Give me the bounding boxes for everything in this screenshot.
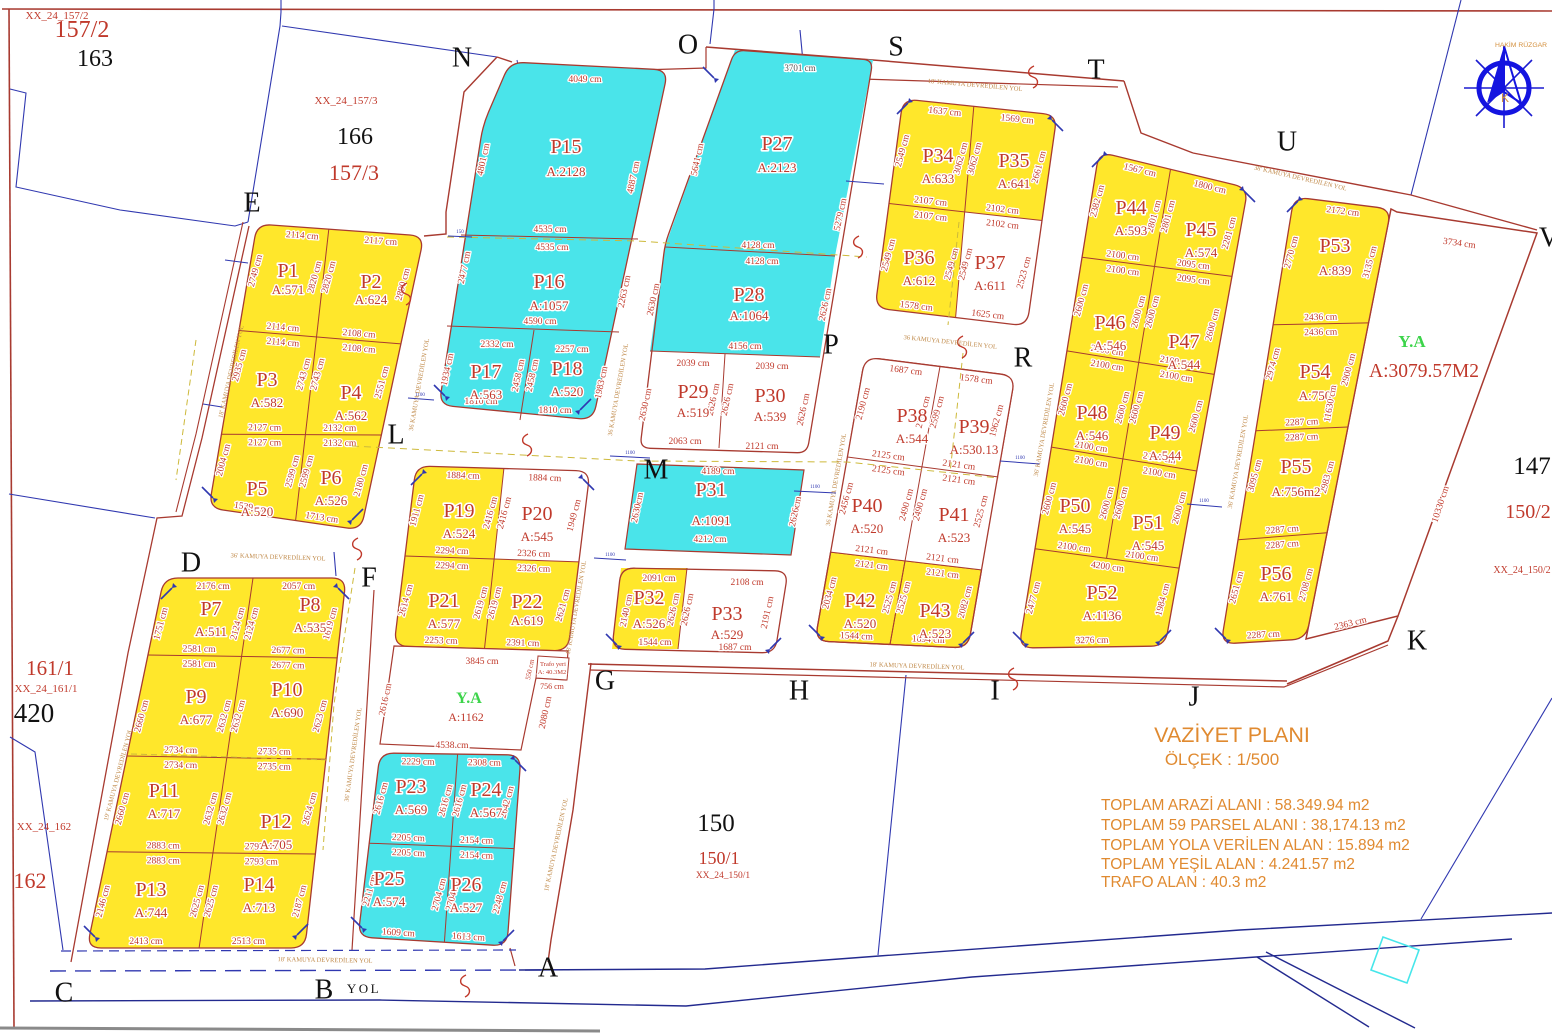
svg-text:161/1: 161/1 xyxy=(26,656,74,680)
svg-text:L: L xyxy=(387,420,404,451)
svg-text:2734 cm: 2734 cm xyxy=(164,761,198,772)
svg-text:P43: P43 xyxy=(919,600,950,622)
svg-text:A:563: A:563 xyxy=(470,387,503,402)
svg-text:P40: P40 xyxy=(851,495,882,517)
svg-text:2154 cm: 2154 cm xyxy=(460,851,494,862)
svg-text:A:571: A:571 xyxy=(272,282,305,297)
svg-text:P39: P39 xyxy=(958,416,989,438)
svg-text:V: V xyxy=(1539,223,1552,254)
svg-text:A:520: A:520 xyxy=(851,521,884,536)
svg-text:P37: P37 xyxy=(974,252,1005,274)
svg-text:P38: P38 xyxy=(896,405,927,427)
svg-text:P23: P23 xyxy=(395,776,426,798)
svg-text:2229 cm: 2229 cm xyxy=(402,757,436,767)
svg-text:A:519: A:519 xyxy=(677,405,710,420)
svg-text:P34: P34 xyxy=(922,145,953,167)
svg-text:I: I xyxy=(990,676,999,707)
svg-text:2253 cm: 2253 cm xyxy=(424,636,458,647)
svg-text:A:744: A:744 xyxy=(135,905,168,920)
svg-text:1100: 1100 xyxy=(605,553,615,558)
svg-text:4590 cm: 4590 cm xyxy=(524,317,558,327)
svg-text:4189 cm: 4189 cm xyxy=(702,467,736,477)
svg-text:1100: 1100 xyxy=(1015,456,1025,461)
svg-text:4535 cm: 4535 cm xyxy=(536,243,570,253)
svg-text:P6: P6 xyxy=(320,467,341,489)
svg-text:A:1064: A:1064 xyxy=(730,308,770,323)
svg-text:N: N xyxy=(452,43,472,74)
svg-text:ÖLÇEK : 1/500: ÖLÇEK : 1/500 xyxy=(1165,750,1279,769)
svg-text:A:527: A:527 xyxy=(450,900,483,915)
svg-text:P42: P42 xyxy=(844,590,875,612)
svg-text:A:619: A:619 xyxy=(511,613,544,628)
svg-text:P24: P24 xyxy=(470,779,501,801)
svg-text:A: A xyxy=(538,953,559,984)
svg-text:166: 166 xyxy=(337,124,373,150)
svg-text:TOPLAM YEŞİL ALAN : 4.241.57: TOPLAM YEŞİL ALAN : 4.241.57 m2 xyxy=(1101,855,1355,873)
svg-text:2287 cm: 2287 cm xyxy=(1285,417,1319,428)
svg-text:4128 cm: 4128 cm xyxy=(742,241,776,251)
svg-text:A:523: A:523 xyxy=(938,530,971,545)
svg-text:A:520: A:520 xyxy=(241,504,274,519)
svg-text:P45: P45 xyxy=(1185,219,1216,241)
svg-text:162: 162 xyxy=(14,868,47,893)
svg-text:150/2: 150/2 xyxy=(1505,501,1551,523)
svg-text:1100: 1100 xyxy=(810,485,820,490)
svg-text:P26: P26 xyxy=(450,874,481,896)
svg-text:1687 cm: 1687 cm xyxy=(719,643,753,653)
svg-text:A:530.13: A:530.13 xyxy=(950,442,999,457)
svg-text:E: E xyxy=(243,188,260,219)
svg-text:P33: P33 xyxy=(711,603,742,625)
svg-text:P31: P31 xyxy=(695,479,726,501)
svg-text:K: K xyxy=(1407,626,1427,657)
svg-text:P1: P1 xyxy=(277,260,298,282)
svg-text:P27: P27 xyxy=(761,133,792,155)
svg-text:3845 cm: 3845 cm xyxy=(466,657,500,667)
svg-text:2127 cm: 2127 cm xyxy=(248,423,282,433)
svg-text:XX_24_150/2: XX_24_150/2 xyxy=(1493,565,1550,576)
svg-text:A:2128: A:2128 xyxy=(547,164,586,179)
svg-text:A:839: A:839 xyxy=(1319,263,1352,278)
svg-text:A:641: A:641 xyxy=(998,176,1031,191)
svg-text:P: P xyxy=(823,330,839,361)
svg-text:2154 cm: 2154 cm xyxy=(460,836,494,847)
svg-text:2294 cm: 2294 cm xyxy=(435,546,469,557)
svg-text:A: 40.3M2: A: 40.3M2 xyxy=(538,669,567,676)
svg-text:150: 150 xyxy=(456,230,464,235)
svg-text:K: K xyxy=(1501,91,1509,105)
svg-text:P11: P11 xyxy=(149,780,179,802)
svg-text:2793 cm: 2793 cm xyxy=(245,857,279,867)
svg-text:A:511: A:511 xyxy=(195,624,227,639)
svg-text:P46: P46 xyxy=(1094,312,1125,334)
svg-text:XX_24_150/1: XX_24_150/1 xyxy=(696,871,751,881)
svg-text:A:524: A:524 xyxy=(443,526,476,541)
svg-text:2326 cm: 2326 cm xyxy=(517,564,551,575)
svg-text:A:1091: A:1091 xyxy=(692,513,731,528)
svg-text:2205 cm: 2205 cm xyxy=(392,848,426,859)
svg-text:2677 cm: 2677 cm xyxy=(271,646,305,657)
svg-text:2883 cm: 2883 cm xyxy=(147,841,181,851)
svg-text:2326 cm: 2326 cm xyxy=(517,549,551,560)
svg-text:2308 cm: 2308 cm xyxy=(468,758,502,768)
svg-text:1613 cm: 1613 cm xyxy=(452,932,486,944)
svg-text:P56: P56 xyxy=(1260,563,1291,585)
svg-text:D: D xyxy=(181,548,201,579)
svg-text:P13: P13 xyxy=(135,879,166,901)
svg-text:A:574: A:574 xyxy=(373,894,406,909)
svg-text:2287 cm: 2287 cm xyxy=(1285,432,1319,443)
svg-text:TOPLAM YOLA VERİLEN ALAN : 15.: TOPLAM YOLA VERİLEN ALAN : 15.894 m2 xyxy=(1101,836,1410,854)
svg-text:420: 420 xyxy=(14,698,55,728)
svg-text:P51: P51 xyxy=(1132,512,1163,534)
svg-text:150/1: 150/1 xyxy=(698,848,739,868)
svg-text:P21: P21 xyxy=(428,590,459,612)
svg-text:P36: P36 xyxy=(903,247,934,269)
svg-text:A:526: A:526 xyxy=(315,493,348,508)
svg-text:F: F xyxy=(361,563,377,594)
svg-text:A:582: A:582 xyxy=(251,395,284,410)
svg-text:2121 cm: 2121 cm xyxy=(746,442,780,452)
svg-text:A:3079.57M2: A:3079.57M2 xyxy=(1369,361,1479,382)
svg-text:3701 cm: 3701 cm xyxy=(784,63,815,73)
svg-text:P20: P20 xyxy=(521,503,552,525)
svg-text:P8: P8 xyxy=(299,594,320,616)
svg-text:A:523: A:523 xyxy=(919,626,952,641)
svg-text:P7: P7 xyxy=(200,598,221,620)
svg-text:P47: P47 xyxy=(1168,331,1199,353)
svg-text:2132 cm: 2132 cm xyxy=(323,424,357,434)
svg-text:A:611: A:611 xyxy=(974,278,1006,293)
svg-text:A:539: A:539 xyxy=(754,409,787,424)
svg-text:2436 cm: 2436 cm xyxy=(1304,313,1338,324)
svg-text:P48: P48 xyxy=(1076,402,1107,424)
svg-text:A:562: A:562 xyxy=(335,408,368,423)
svg-text:1884 cm: 1884 cm xyxy=(446,471,480,482)
svg-text:2391 cm: 2391 cm xyxy=(506,638,540,649)
svg-text:A:717: A:717 xyxy=(148,806,181,821)
svg-text:2057 cm: 2057 cm xyxy=(282,582,316,592)
svg-text:XX_24_157/3: XX_24_157/3 xyxy=(315,95,378,107)
svg-text:2039 cm: 2039 cm xyxy=(756,362,790,372)
svg-text:P29: P29 xyxy=(677,381,708,403)
svg-text:TOPLAM ARAZİ ALANI : 58.349.94: TOPLAM ARAZİ ALANI : 58.349.94 m2 xyxy=(1101,796,1370,814)
svg-text:4535 cm: 4535 cm xyxy=(534,225,568,235)
svg-text:150: 150 xyxy=(697,810,735,837)
svg-text:2735 cm: 2735 cm xyxy=(258,762,292,773)
svg-text:2436 cm: 2436 cm xyxy=(1304,328,1338,339)
svg-text:147: 147 xyxy=(1513,453,1551,480)
svg-text:A:545: A:545 xyxy=(1132,538,1165,553)
svg-text:A:546: A:546 xyxy=(1094,338,1127,353)
svg-text:1544 cm: 1544 cm xyxy=(639,638,673,648)
svg-text:A:545: A:545 xyxy=(521,529,554,544)
svg-text:A:690: A:690 xyxy=(271,705,304,720)
svg-text:M: M xyxy=(644,455,669,486)
svg-text:2581 cm: 2581 cm xyxy=(183,660,217,671)
svg-text:P30: P30 xyxy=(754,385,785,407)
svg-text:A:677: A:677 xyxy=(180,712,213,727)
svg-text:3276 cm: 3276 cm xyxy=(1075,636,1109,646)
svg-text:P35: P35 xyxy=(998,150,1029,172)
svg-text:A:713: A:713 xyxy=(243,900,276,915)
svg-text:TRAFO ALAN : 40.3 m2: TRAFO ALAN : 40.3 m2 xyxy=(1101,874,1266,891)
svg-text:2091 cm: 2091 cm xyxy=(643,574,677,584)
svg-text:A:544: A:544 xyxy=(1149,448,1182,463)
svg-text:2294 cm: 2294 cm xyxy=(435,561,469,572)
svg-text:2883 cm: 2883 cm xyxy=(147,856,181,866)
svg-text:A:761: A:761 xyxy=(1260,589,1293,604)
svg-text:2287 cm: 2287 cm xyxy=(1247,629,1281,641)
svg-text:XX_24_161/1: XX_24_161/1 xyxy=(15,683,78,695)
svg-text:A:535: A:535 xyxy=(294,620,327,635)
svg-text:R: R xyxy=(1014,343,1033,374)
svg-text:756 cm: 756 cm xyxy=(540,682,565,691)
svg-text:P4: P4 xyxy=(340,382,361,404)
svg-text:4538 cm: 4538 cm xyxy=(436,741,470,751)
svg-text:P16: P16 xyxy=(533,271,564,293)
svg-text:P28: P28 xyxy=(733,284,764,306)
svg-text:Y.A: Y.A xyxy=(456,690,482,707)
svg-text:A:520: A:520 xyxy=(844,616,877,631)
svg-text:P12: P12 xyxy=(260,811,291,833)
svg-text:1609 cm: 1609 cm xyxy=(382,927,416,939)
svg-text:4128 cm: 4128 cm xyxy=(746,257,780,267)
svg-text:2039 cm: 2039 cm xyxy=(677,359,711,369)
svg-text:B: B xyxy=(315,975,334,1006)
svg-text:A:624: A:624 xyxy=(355,292,388,307)
svg-text:Trafo yeri: Trafo yeri xyxy=(540,661,566,668)
svg-text:2677 cm: 2677 cm xyxy=(271,661,305,672)
svg-text:G: G xyxy=(595,666,615,697)
svg-text:P3: P3 xyxy=(256,369,277,391)
svg-text:P17: P17 xyxy=(470,361,501,383)
svg-text:2205 cm: 2205 cm xyxy=(392,833,426,844)
svg-text:A:520: A:520 xyxy=(551,384,584,399)
svg-text:P9: P9 xyxy=(185,686,206,708)
svg-text:P53: P53 xyxy=(1319,235,1350,257)
svg-text:P50: P50 xyxy=(1059,495,1090,517)
svg-text:2063 cm: 2063 cm xyxy=(669,437,703,447)
svg-text:A:545: A:545 xyxy=(1059,521,1092,536)
svg-text:A:756m2: A:756m2 xyxy=(1271,484,1320,499)
svg-text:YOL: YOL xyxy=(347,981,381,996)
svg-text:2735 cm: 2735 cm xyxy=(258,747,292,758)
svg-text:U: U xyxy=(1277,127,1297,158)
svg-text:XX_24_162: XX_24_162 xyxy=(17,821,71,833)
svg-text:1884 cm: 1884 cm xyxy=(528,473,562,484)
svg-text:157/3: 157/3 xyxy=(329,160,379,185)
svg-text:2108 cm: 2108 cm xyxy=(731,578,765,588)
svg-text:2734 cm: 2734 cm xyxy=(164,746,198,757)
svg-text:2132 cm: 2132 cm xyxy=(323,439,357,449)
svg-text:2413 cm: 2413 cm xyxy=(129,937,163,947)
svg-text:P14: P14 xyxy=(243,874,274,896)
svg-text:P44: P44 xyxy=(1115,197,1146,219)
svg-text:1100: 1100 xyxy=(1199,499,1209,504)
svg-text:VAZİYET PLANI: VAZİYET PLANI xyxy=(1154,723,1310,747)
svg-text:P18: P18 xyxy=(551,358,582,380)
svg-text:4049 cm: 4049 cm xyxy=(569,75,603,85)
svg-text:P5: P5 xyxy=(246,478,267,500)
svg-text:T: T xyxy=(1087,55,1104,86)
svg-text:2127 cm: 2127 cm xyxy=(248,438,282,448)
svg-text:1544 cm: 1544 cm xyxy=(840,631,874,643)
svg-text:J: J xyxy=(1189,682,1200,713)
svg-text:P55: P55 xyxy=(1280,456,1311,478)
svg-text:A:567: A:567 xyxy=(470,805,503,820)
svg-text:2513 cm: 2513 cm xyxy=(232,937,266,947)
svg-text:P19: P19 xyxy=(443,500,474,522)
svg-text:A:569: A:569 xyxy=(395,802,428,817)
svg-text:P49: P49 xyxy=(1149,422,1180,444)
svg-text:A:546: A:546 xyxy=(1076,428,1109,443)
svg-text:2176 cm: 2176 cm xyxy=(197,582,231,592)
svg-text:TOPLAM 59 PARSEL ALANI : 38,17: TOPLAM 59 PARSEL ALANI : 38,174.13 m2 xyxy=(1101,817,1406,834)
svg-text:A:526: A:526 xyxy=(633,616,666,631)
svg-text:P2: P2 xyxy=(360,271,381,293)
svg-text:A:593: A:593 xyxy=(1115,223,1148,238)
svg-text:HAKİM RÜZGAR: HAKİM RÜZGAR xyxy=(1495,40,1547,49)
svg-text:A:705: A:705 xyxy=(260,837,293,852)
svg-text:A:2123: A:2123 xyxy=(758,160,797,175)
svg-text:P10: P10 xyxy=(271,679,302,701)
svg-text:A:1136: A:1136 xyxy=(1083,608,1122,623)
svg-text:A:633: A:633 xyxy=(922,171,955,186)
svg-text:2581 cm: 2581 cm xyxy=(183,645,217,656)
svg-text:157/2: 157/2 xyxy=(55,17,110,43)
svg-text:1810 cm: 1810 cm xyxy=(539,406,573,416)
svg-text:P22: P22 xyxy=(511,591,542,613)
svg-text:A:612: A:612 xyxy=(903,273,936,288)
svg-text:P25: P25 xyxy=(373,868,404,890)
svg-text:A:544: A:544 xyxy=(896,431,929,446)
svg-text:P32: P32 xyxy=(633,587,664,609)
svg-text:A:1162: A:1162 xyxy=(448,710,484,724)
svg-text:A:544: A:544 xyxy=(1168,357,1201,372)
svg-text:Y.A: Y.A xyxy=(1398,332,1426,351)
svg-text:P54: P54 xyxy=(1299,361,1330,383)
svg-text:4212 cm: 4212 cm xyxy=(694,535,728,545)
svg-text:2332 cm: 2332 cm xyxy=(481,340,515,350)
svg-text:A:529: A:529 xyxy=(711,627,744,642)
svg-text:H: H xyxy=(789,676,809,707)
svg-text:A:574: A:574 xyxy=(1185,245,1218,260)
svg-text:S: S xyxy=(888,32,904,63)
svg-text:4156 cm: 4156 cm xyxy=(729,342,763,352)
svg-text:P15: P15 xyxy=(550,136,581,158)
svg-text:A:1057: A:1057 xyxy=(530,298,570,313)
svg-text:2257 cm: 2257 cm xyxy=(556,345,590,355)
svg-text:O: O xyxy=(678,30,698,61)
svg-text:A:577: A:577 xyxy=(428,616,461,631)
svg-text:1100: 1100 xyxy=(625,451,635,456)
svg-text:P41: P41 xyxy=(938,504,969,526)
svg-text:P52: P52 xyxy=(1086,582,1117,604)
svg-text:163: 163 xyxy=(77,46,113,72)
svg-text:C: C xyxy=(55,978,74,1009)
